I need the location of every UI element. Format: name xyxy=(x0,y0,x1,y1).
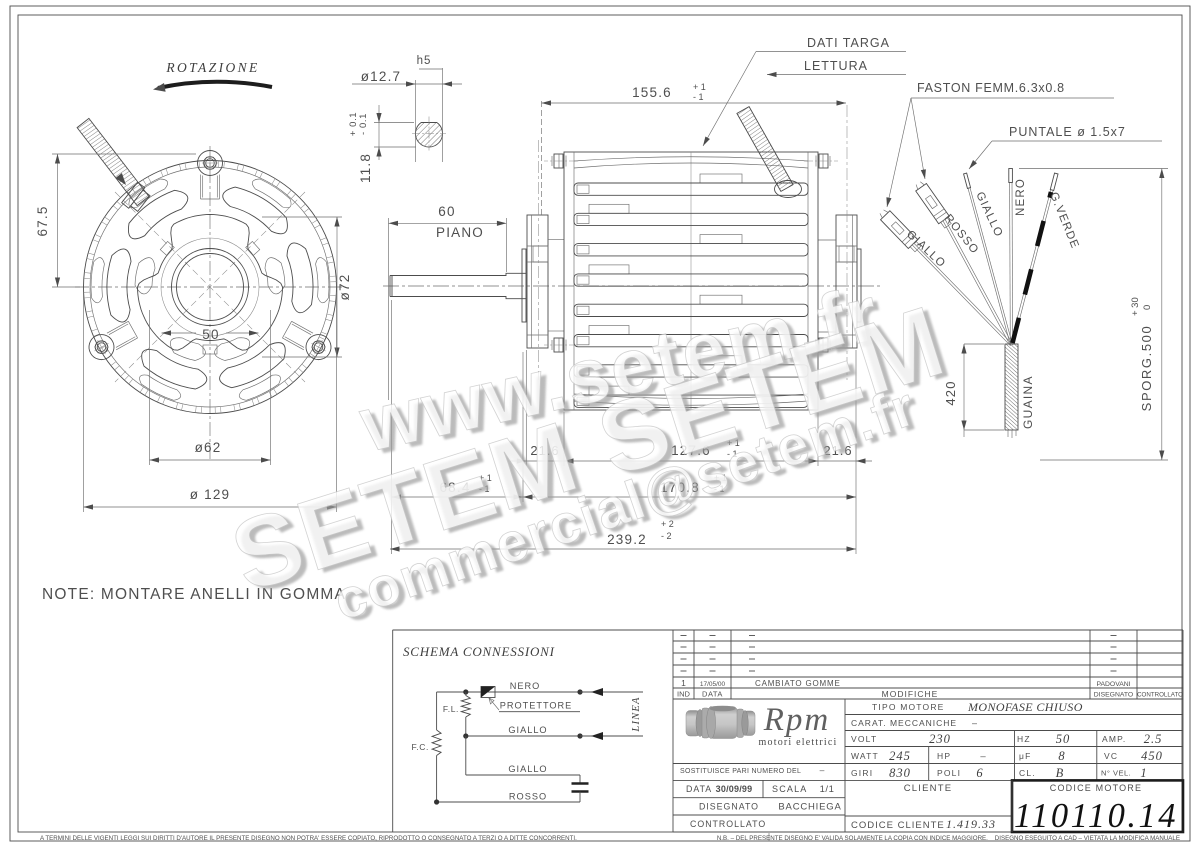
svg-text:- 0.1: - 0.1 xyxy=(358,113,369,135)
svg-text:DATA: DATA xyxy=(702,690,723,699)
svg-text:motori elettrici: motori elettrici xyxy=(759,737,838,748)
svg-text:+ 1: + 1 xyxy=(693,82,706,92)
svg-text:SCALA: SCALA xyxy=(772,784,808,794)
svg-text:ø72: ø72 xyxy=(337,274,352,301)
svg-text:1: 1 xyxy=(1140,766,1147,780)
svg-text:GUAINA: GUAINA xyxy=(1021,375,1035,429)
svg-text:AMP.: AMP. xyxy=(1102,734,1127,744)
svg-text:245: 245 xyxy=(889,749,911,763)
svg-text:ø62: ø62 xyxy=(195,440,222,455)
svg-text:6: 6 xyxy=(976,766,983,780)
svg-text:PUNTALE ø 1.5x7: PUNTALE ø 1.5x7 xyxy=(1009,125,1126,139)
svg-text:11.8: 11.8 xyxy=(358,153,373,183)
svg-text:830: 830 xyxy=(889,766,911,780)
svg-text:Rpm: Rpm xyxy=(763,702,831,738)
svg-text:GIALLO: GIALLO xyxy=(508,725,547,735)
svg-text:ø 129: ø 129 xyxy=(190,487,231,502)
svg-text:CLIENTE: CLIENTE xyxy=(904,783,953,794)
svg-text:30/09/99: 30/09/99 xyxy=(716,784,753,794)
svg-text:CODICE MOTORE: CODICE MOTORE xyxy=(1050,783,1142,793)
svg-text:230: 230 xyxy=(929,732,951,746)
svg-text:- 2: - 2 xyxy=(661,531,672,541)
svg-text:NERO: NERO xyxy=(510,681,541,691)
svg-text:67.5: 67.5 xyxy=(35,205,50,236)
svg-text:CODICE CLIENTE: CODICE CLIENTE xyxy=(851,820,945,831)
svg-text:0: 0 xyxy=(1142,305,1153,310)
svg-text:17/05/00: 17/05/00 xyxy=(700,681,726,688)
svg-text:PROTETTORE: PROTETTORE xyxy=(500,701,573,711)
svg-text:+ 30: + 30 xyxy=(1130,297,1141,316)
svg-text:h5: h5 xyxy=(417,55,432,67)
svg-text:N.B. – DEL PRESENTE DISEGNO E': N.B. – DEL PRESENTE DISEGNO E' VALIDA SO… xyxy=(717,835,1180,842)
svg-text:155.6: 155.6 xyxy=(632,85,672,100)
svg-text:GIRI: GIRI xyxy=(851,768,873,778)
svg-text:CARAT. MECCANICHE: CARAT. MECCANICHE xyxy=(851,718,957,728)
svg-text:MONOFASE CHIUSO: MONOFASE CHIUSO xyxy=(967,700,1083,714)
svg-text:1/1: 1/1 xyxy=(820,784,835,795)
svg-text:IND: IND xyxy=(677,690,691,699)
svg-text:LETTURA: LETTURA xyxy=(804,59,868,73)
svg-text:LINEA: LINEA xyxy=(631,696,642,732)
svg-text:N° VEL.: N° VEL. xyxy=(1101,769,1131,778)
svg-text:GIALLO: GIALLO xyxy=(508,764,547,774)
svg-text:110110.14: 110110.14 xyxy=(1014,797,1178,835)
svg-text:FASTON FEMM.6.3x0.8: FASTON FEMM.6.3x0.8 xyxy=(917,81,1065,95)
svg-text:PIANO: PIANO xyxy=(436,225,484,240)
svg-text:μF: μF xyxy=(1019,751,1032,761)
svg-text:DATA: DATA xyxy=(686,784,712,794)
svg-text:PADOVANI: PADOVANI xyxy=(1096,681,1130,688)
svg-text:F.L.: F.L. xyxy=(443,704,459,714)
svg-text:ROTAZIONE: ROTAZIONE xyxy=(165,60,259,75)
svg-text:ø12.7: ø12.7 xyxy=(361,69,402,84)
svg-text:F.C.: F.C. xyxy=(411,742,429,752)
svg-text:HP: HP xyxy=(937,751,951,761)
svg-text:HZ: HZ xyxy=(1017,734,1031,744)
svg-text:SCHEMA CONNESSIONI: SCHEMA CONNESSIONI xyxy=(403,644,555,659)
svg-text:60: 60 xyxy=(438,204,455,219)
svg-text:450: 450 xyxy=(1141,749,1163,763)
svg-text:CONTROLLATO: CONTROLLATO xyxy=(690,819,766,829)
svg-text:2.5: 2.5 xyxy=(1144,732,1163,746)
svg-text:SOSTITUISCE PARI NUMERO DEL: SOSTITUISCE PARI NUMERO DEL xyxy=(680,768,801,775)
svg-text:ROSSO: ROSSO xyxy=(509,792,547,802)
svg-text:VC: VC xyxy=(1104,751,1118,761)
svg-text:BACCHIEGA: BACCHIEGA xyxy=(778,802,841,813)
svg-text:DISEGNATO: DISEGNATO xyxy=(1094,692,1133,699)
svg-text:MODIFICHE: MODIFICHE xyxy=(882,689,939,699)
svg-text:SPORG.500: SPORG.500 xyxy=(1139,325,1154,412)
svg-text:TIPO MOTORE: TIPO MOTORE xyxy=(872,702,945,712)
svg-text:CAMBIATO GOMME: CAMBIATO GOMME xyxy=(755,679,841,688)
svg-text:- 1: - 1 xyxy=(693,92,704,102)
svg-text:B: B xyxy=(1056,766,1065,780)
svg-text:8: 8 xyxy=(1058,749,1065,763)
svg-text:50: 50 xyxy=(1056,732,1071,746)
svg-text:DATI TARGA: DATI TARGA xyxy=(807,36,890,50)
svg-text:POLI: POLI xyxy=(937,768,961,778)
svg-text:DISEGNATO: DISEGNATO xyxy=(699,802,759,812)
svg-text:CL.: CL. xyxy=(1019,768,1036,778)
svg-text:–: – xyxy=(980,751,986,762)
svg-text:VOLT: VOLT xyxy=(851,734,877,744)
svg-text:A TERMINI DELLE VIGENTI LEGGI: A TERMINI DELLE VIGENTI LEGGI SUI DIRITT… xyxy=(40,835,577,842)
svg-text:1: 1 xyxy=(681,678,686,688)
svg-text:–: – xyxy=(972,718,977,728)
svg-text:–: – xyxy=(820,765,825,775)
svg-text:NERO: NERO xyxy=(1015,178,1027,216)
svg-text:1.419.33: 1.419.33 xyxy=(946,817,996,831)
svg-text:50: 50 xyxy=(202,327,219,342)
svg-text:WATT: WATT xyxy=(851,751,879,761)
svg-text:CONTROLLATO: CONTROLLATO xyxy=(1137,692,1183,699)
